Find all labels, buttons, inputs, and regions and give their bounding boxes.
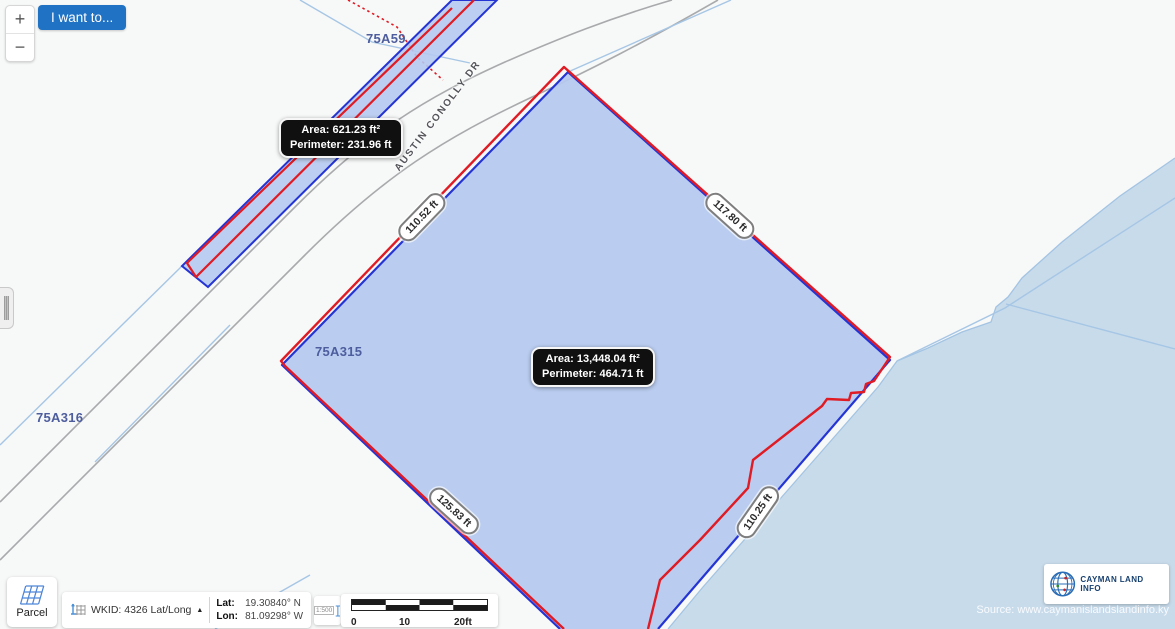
parcel-tool-label: Parcel: [16, 607, 47, 619]
globe-logo-icon: [1048, 569, 1077, 599]
parcel-label-75A315: 75A315: [315, 344, 362, 359]
coordinate-statusbar: WKID: 4326 Lat/Long ▲ Lat: 19.30840° N L…: [62, 592, 311, 628]
grip-icon: [4, 296, 9, 320]
tooltip-strip-parcel: Area: 621.23 ft² Perimeter: 231.96 ft: [279, 118, 403, 158]
statusbar-divider: [209, 597, 210, 623]
zoom-control: + −: [5, 5, 35, 62]
tooltip-main-area: Area: 13,448.04 ft²: [542, 352, 644, 367]
scale-bar-labels: 0 10 20ft: [351, 617, 488, 628]
map-canvas[interactable]: [0, 0, 1175, 629]
wkid-label: WKID: 4326 Lat/Long: [91, 604, 191, 616]
scale-bar: 0 10 20ft: [341, 594, 498, 627]
parcel-grid-icon: [19, 585, 45, 605]
parcel-label-75A59: 75A59: [366, 31, 406, 46]
lon-label: Lon:: [216, 610, 242, 623]
scale-tick-10: 10: [399, 617, 454, 628]
scale-tick-0: 0: [351, 617, 399, 628]
scale-ratio-widget[interactable]: 1:500: [314, 596, 341, 625]
source-attribution: Source: www.caymanislandslandinfo.ky: [976, 604, 1169, 616]
lon-value: 81.09298° W: [245, 611, 303, 622]
panel-toggle-handle[interactable]: [0, 287, 14, 329]
scale-bar-graphic: [351, 599, 488, 611]
coordinates-readout: Lat: 19.30840° N Lon: 81.09298° W: [216, 597, 303, 623]
tooltip-main-perimeter: Perimeter: 464.71 ft: [542, 367, 644, 382]
cayman-land-info-logo: CAYMAN LAND INFO: [1044, 564, 1169, 604]
i-want-to-button[interactable]: I want to...: [38, 5, 126, 30]
caret-up-icon: ▲: [196, 607, 203, 614]
tooltip-main-parcel: Area: 13,448.04 ft² Perimeter: 464.71 ft: [531, 347, 655, 387]
zoom-out-button[interactable]: −: [6, 34, 34, 61]
parcel-label-75A316: 75A316: [36, 410, 83, 425]
lat-label: Lat:: [216, 597, 242, 610]
zoom-in-button[interactable]: +: [6, 6, 34, 33]
lat-value: 19.30840° N: [245, 598, 301, 609]
parcel-tool-button[interactable]: Parcel: [7, 577, 57, 627]
scale-tick-20: 20ft: [454, 617, 472, 628]
tooltip-strip-perimeter: Perimeter: 231.96 ft: [290, 138, 392, 153]
coordinate-system-icon: [70, 602, 86, 618]
tooltip-strip-area: Area: 621.23 ft²: [290, 123, 392, 138]
logo-text: CAYMAN LAND INFO: [1080, 575, 1165, 593]
scale-ratio-value: 1:500: [314, 606, 334, 615]
wkid-selector[interactable]: WKID: 4326 Lat/Long ▲: [70, 602, 203, 618]
